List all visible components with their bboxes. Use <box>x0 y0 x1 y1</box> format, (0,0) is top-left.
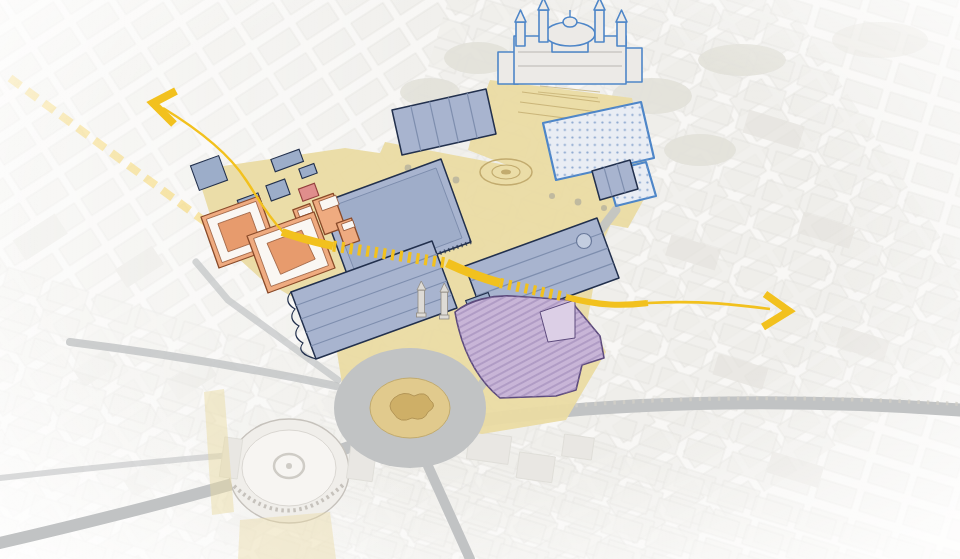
south-yellow-patch <box>238 512 336 559</box>
hall-dome <box>577 234 592 249</box>
palace-landmark <box>498 0 642 98</box>
roundabout-plaza <box>334 348 486 468</box>
masterplan-illustration <box>0 0 960 559</box>
masterplan-canvas <box>0 0 960 559</box>
palace-lantern <box>563 17 577 27</box>
